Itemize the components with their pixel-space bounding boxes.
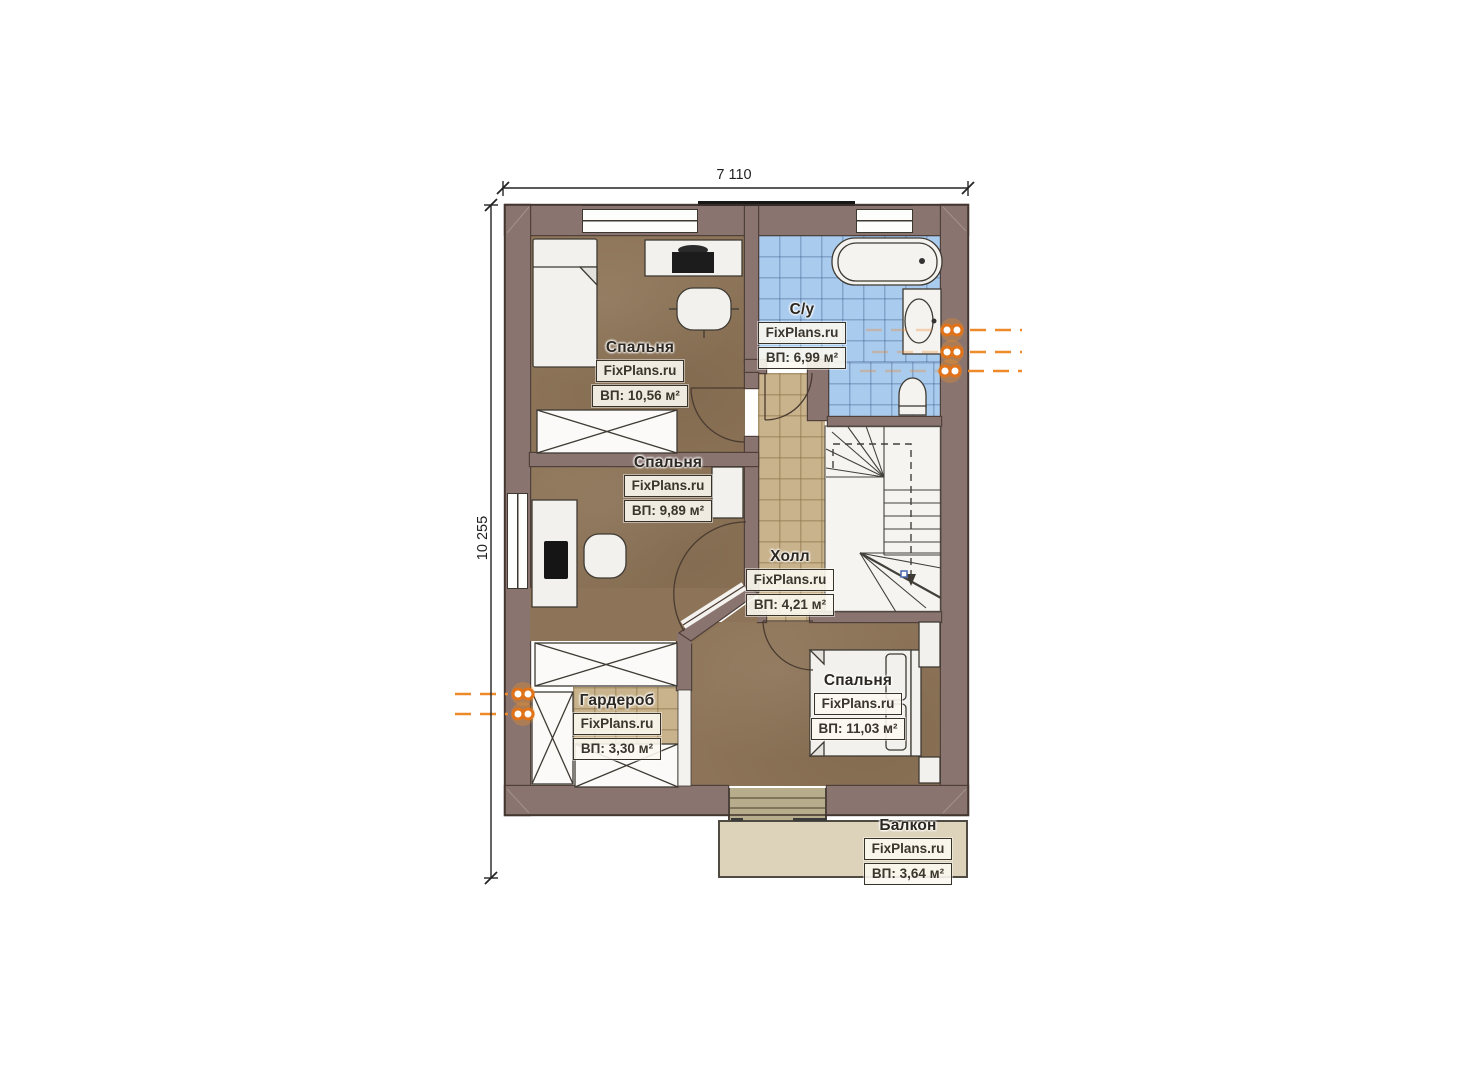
room-area: ВП: 9,89 м²	[624, 500, 712, 522]
balcony-door-threshold	[728, 788, 827, 820]
floor-plan-canvas: 7 110 10 255 Спальня FixPlans.ru ВП: 10,…	[0, 0, 1473, 1080]
floor-bathroom-lower	[828, 362, 941, 417]
room-name: Спальня	[634, 454, 702, 472]
room-area: ВП: 10,56 м²	[592, 385, 688, 407]
window-bathroom	[856, 209, 913, 233]
watermark-fixplans: FixPlans.ru	[746, 569, 835, 591]
window-bedroom-2	[507, 493, 528, 589]
watermark-fixplans: FixPlans.ru	[596, 360, 685, 382]
wall-stairs-top	[828, 417, 941, 426]
window-1-lintel	[582, 204, 698, 206]
watermark-fixplans: FixPlans.ru	[864, 838, 953, 860]
closet-bedroom-2	[535, 643, 677, 686]
dimension-height-label: 10 255	[475, 503, 491, 573]
room-label-wardrobe: Гардероб FixPlans.ru ВП: 3,30 м²	[537, 692, 697, 760]
room-name: Холл	[770, 548, 810, 566]
room-name: Спальня	[606, 339, 674, 357]
room-label-balcony: Балкон FixPlans.ru ВП: 3,64 м²	[828, 817, 988, 885]
wall-wardrobe-right	[677, 630, 691, 690]
room-area: ВП: 4,21 м²	[746, 594, 834, 616]
room-label-bedroom-3: Спальня FixPlans.ru ВП: 11,03 м²	[778, 672, 938, 740]
wall-hall-left-upper	[745, 373, 758, 388]
window-2-lintel	[856, 204, 913, 206]
room-name: Гардероб	[580, 692, 655, 710]
dimension-width-label: 7 110	[699, 167, 769, 183]
roof-edge-line	[698, 201, 855, 206]
room-area: ВП: 6,99 м²	[758, 347, 846, 369]
wall-outer-bottom-left	[505, 786, 728, 815]
room-label-bedroom-1: Спальня FixPlans.ru ВП: 10,56 м²	[560, 339, 720, 407]
window-bedroom-1	[582, 209, 698, 233]
room-area: ВП: 11,03 м²	[811, 718, 906, 740]
room-area: ВП: 3,30 м²	[573, 738, 661, 760]
watermark-fixplans: FixPlans.ru	[573, 713, 662, 735]
room-label-bedroom-2: Спальня FixPlans.ru ВП: 9,89 м²	[588, 454, 748, 522]
watermark-fixplans: FixPlans.ru	[814, 693, 903, 715]
wall-outer-right	[941, 205, 968, 815]
room-area: ВП: 3,64 м²	[864, 863, 952, 885]
room-label-bathroom: С/у FixPlans.ru ВП: 6,99 м²	[722, 301, 882, 369]
room-name: С/у	[790, 301, 815, 319]
wall-outer-bottom-right	[827, 786, 968, 815]
watermark-fixplans: FixPlans.ru	[758, 322, 847, 344]
room-label-hall: Холл FixPlans.ru ВП: 4,21 м²	[710, 548, 870, 616]
room-name: Спальня	[824, 672, 892, 690]
room-name: Балкон	[879, 817, 936, 835]
watermark-fixplans: FixPlans.ru	[624, 475, 713, 497]
